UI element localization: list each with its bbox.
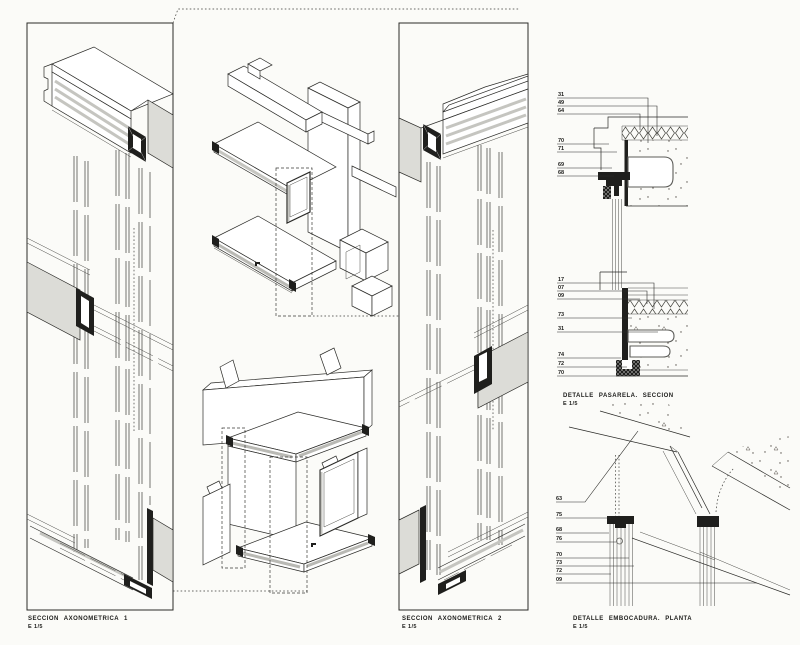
svg-text:72: 72 <box>556 568 562 574</box>
drawing-canvas: SECCION AXONOMETRICA 1 E 1/5 <box>0 0 800 645</box>
svg-text:68: 68 <box>556 527 562 533</box>
axo1-wall-plane <box>27 238 173 371</box>
svg-text:73: 73 <box>556 560 562 566</box>
axo2-scale: E 1/5 <box>402 624 417 630</box>
svg-text:17: 17 <box>558 277 564 283</box>
panel-seccion-axonometrica-2: SECCION AXONOMETRICA 2 E 1/5 <box>399 23 528 630</box>
svg-text:71: 71 <box>558 146 564 152</box>
svg-text:72: 72 <box>558 361 564 367</box>
svg-text:68: 68 <box>558 170 564 176</box>
embocadura-callouts: 63 75 68 76 70 73 <box>556 431 757 583</box>
svg-text:75: 75 <box>556 512 562 518</box>
callout-embocadura-4: 70 <box>556 552 629 558</box>
callout-embocadura-5: 73 <box>556 560 634 566</box>
axo1-sill <box>27 508 173 599</box>
axo2-top-beam <box>399 74 528 182</box>
axo1-scale: E 1/5 <box>28 624 43 630</box>
callout-pasarela-top-3: 70 <box>557 138 609 144</box>
sealant-marker <box>617 538 623 544</box>
svg-text:31: 31 <box>558 326 564 332</box>
embocadura-scale: E 1/5 <box>573 624 588 630</box>
axo2-title: SECCION AXONOMETRICA 2 <box>402 616 502 622</box>
panel-seccion-axonometrica-1: SECCION AXONOMETRICA 1 E 1/5 <box>27 23 173 630</box>
callout-pasarela-bottom-5: 74 <box>557 352 621 358</box>
callout-pasarela-bottom-3: 73 <box>557 312 632 318</box>
drawing-sheet: SECCION AXONOMETRICA 1 E 1/5 <box>0 0 800 645</box>
svg-text:63: 63 <box>556 496 562 502</box>
svg-text:64: 64 <box>558 108 565 114</box>
axo2-sill <box>399 505 528 595</box>
callout-pasarela-top-5: 69 <box>557 162 612 168</box>
callout-embocadura-1: 75 <box>556 512 611 518</box>
embocadura-right-jamb <box>697 468 734 606</box>
axo1-mullions <box>74 150 150 580</box>
svg-text:70: 70 <box>558 370 564 376</box>
pasarela-scale: E 1/5 <box>563 401 578 407</box>
svg-text:70: 70 <box>556 552 562 558</box>
detail-embocadura: 63 75 68 76 70 73 <box>556 403 790 630</box>
axo1-title: SECCION AXONOMETRICA 1 <box>28 616 128 622</box>
axo2-wall-plane <box>399 305 528 408</box>
embocadura-left-jamb <box>607 455 634 606</box>
callout-embocadura-3: 76 <box>556 536 616 542</box>
pasarela-title: DETALLE PASARELA. SECCION <box>563 393 674 399</box>
callout-embocadura-0: 63 <box>556 431 638 502</box>
svg-text:09: 09 <box>558 293 564 299</box>
svg-text:76: 76 <box>556 536 562 542</box>
embocadura-title: DETALLE EMBOCADURA. PLANTA <box>573 616 692 622</box>
callout-embocadura-2: 68 <box>556 527 609 533</box>
svg-text:70: 70 <box>558 138 564 144</box>
svg-text:49: 49 <box>558 100 564 106</box>
callout-embocadura-6: 72 <box>556 568 611 574</box>
detail-axo-top <box>212 58 396 316</box>
embocadura-drawing <box>569 403 790 606</box>
svg-text:74: 74 <box>558 352 565 358</box>
svg-text:07: 07 <box>558 285 564 291</box>
pasarela-lower-section <box>600 272 688 376</box>
pasarela-upper-section <box>594 117 688 290</box>
callout-embocadura-7: 09 <box>556 577 757 583</box>
detail-pasarela: 31 49 64 70 71 69 <box>557 92 688 407</box>
svg-text:31: 31 <box>558 92 564 98</box>
svg-text:69: 69 <box>558 162 564 168</box>
axo1-top-beam <box>44 47 173 168</box>
callout-pasarela-top-4: 71 <box>557 146 617 152</box>
svg-text:09: 09 <box>556 577 562 583</box>
svg-text:73: 73 <box>558 312 564 318</box>
detail-axo-bottom <box>203 348 375 593</box>
